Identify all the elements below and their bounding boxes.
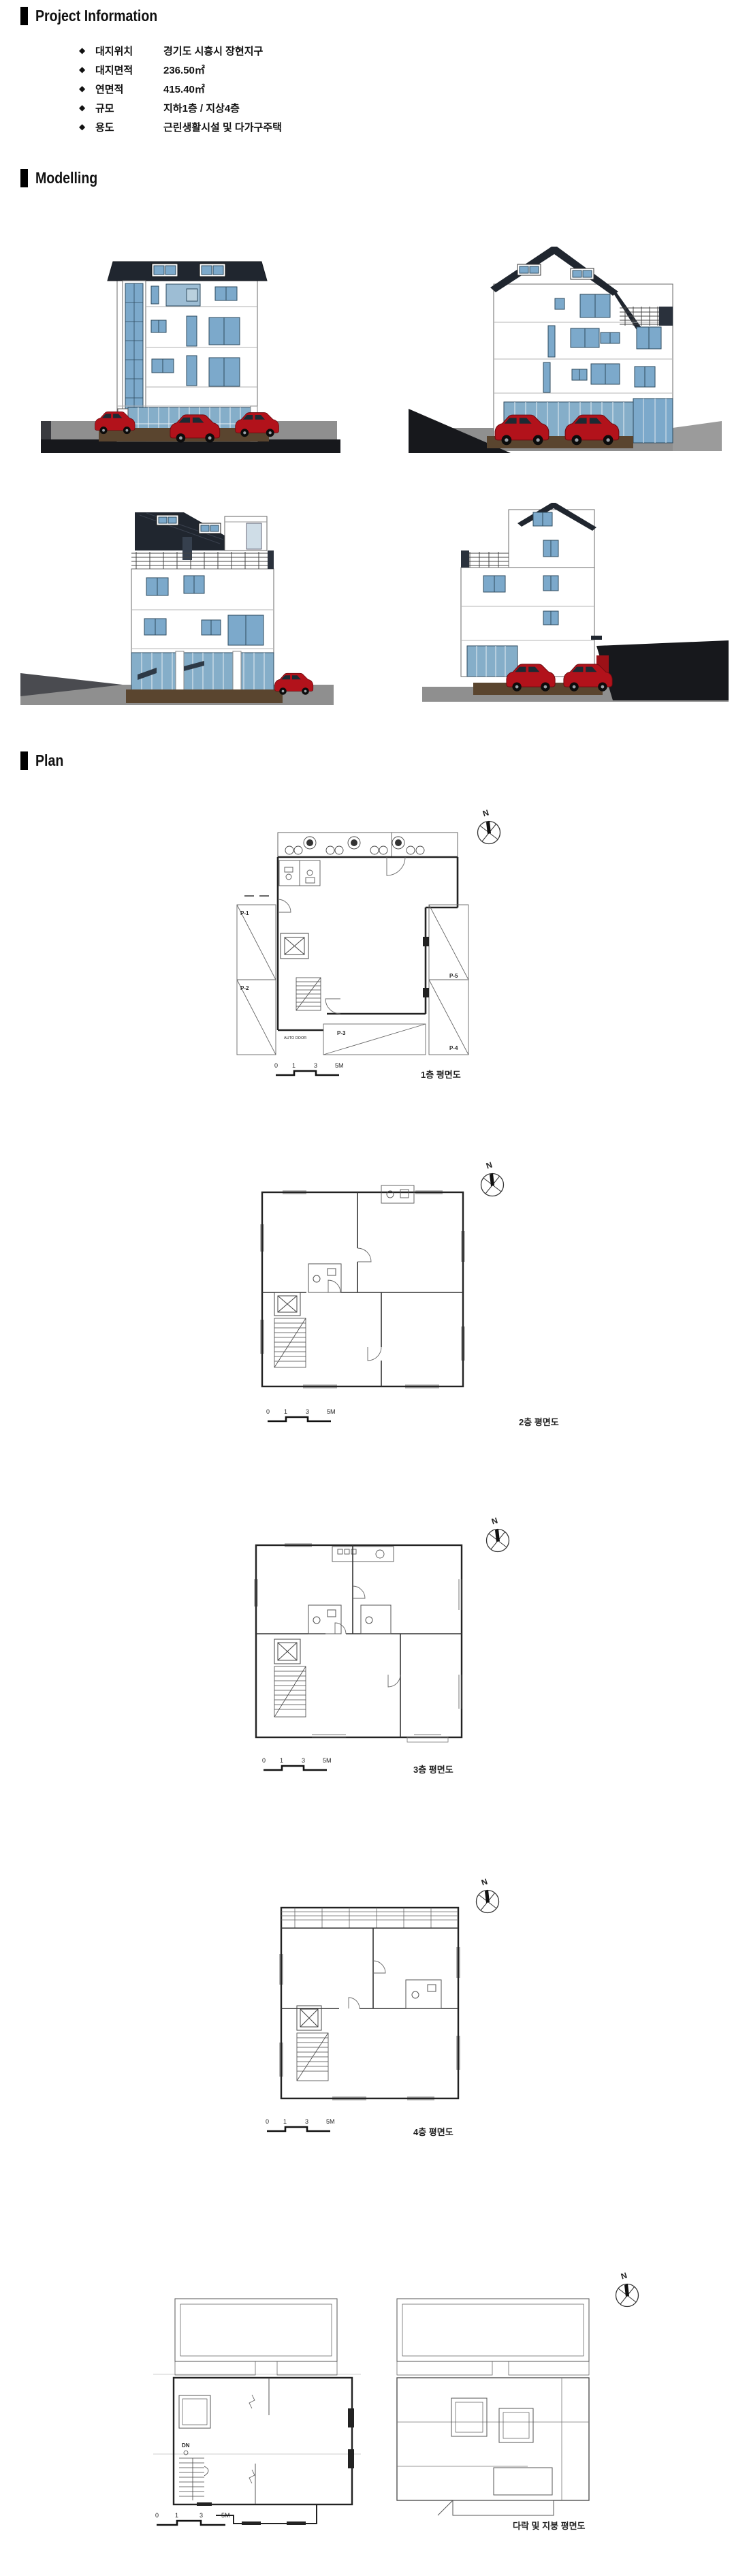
section-title-plan: Plan xyxy=(20,751,69,770)
stairs xyxy=(274,1318,306,1367)
scale-tick: 0 xyxy=(155,2512,159,2519)
info-row-site-location: ◆ 대지위치 경기도 시흥시 장현지구 xyxy=(79,41,282,60)
floor-plan-1f: N xyxy=(225,801,511,1097)
info-value: 근린생활시설 및 다가구주택 xyxy=(163,120,282,134)
floor-plan-2f: N xyxy=(225,1155,572,1455)
plan-drawing-4f xyxy=(271,1899,468,2104)
parking-bottom xyxy=(323,1024,426,1055)
interior-walls xyxy=(256,1545,462,1737)
scale-tick: 5M xyxy=(335,1062,344,1069)
info-value: 236.50㎡ xyxy=(163,63,205,77)
window-ticks xyxy=(261,1191,464,1388)
down-label: DN xyxy=(182,2442,190,2449)
info-row-site-area: ◆ 대지면적 236.50㎡ xyxy=(79,60,282,79)
storefront xyxy=(131,651,274,695)
penthouse xyxy=(225,516,267,550)
north-compass-icon: N xyxy=(473,806,505,848)
project-info-title: Project Information xyxy=(35,7,157,25)
door-arcs xyxy=(349,1961,385,2008)
scale-tick: 0 xyxy=(266,2118,269,2125)
info-row-use: ◆ 용도 근린생활시설 및 다가구주택 xyxy=(79,117,282,136)
interior-walls xyxy=(281,1928,458,2008)
north-compass-icon: N xyxy=(482,1514,513,1556)
kitchen-counter xyxy=(332,1547,394,1562)
scale-tick: 0 xyxy=(262,1757,266,1764)
diamond-bullet-icon: ◆ xyxy=(79,103,95,112)
scale-tick: 5M xyxy=(323,1757,332,1764)
info-label: 규모 xyxy=(95,101,155,115)
door-arcs xyxy=(328,1248,381,1361)
north-label: N xyxy=(480,1877,489,1888)
render-right-side-elevation xyxy=(409,211,722,453)
plan-drawing-1f: P-1 P-2 P-3 P-4 P-5 AUTO DOOR xyxy=(235,828,470,1059)
floor-plan-3f: N xyxy=(225,1509,511,1802)
roof-body xyxy=(397,2378,589,2500)
scale-tick: 0 xyxy=(274,1062,278,1069)
elevator xyxy=(274,1639,300,1664)
scale-bar: 0 1 3 5M xyxy=(264,1407,346,1426)
scale-tick: 0 xyxy=(266,1408,270,1415)
building xyxy=(461,503,602,677)
scale-bar: 0 1 3 5M xyxy=(272,1061,354,1080)
parking-label: P-5 xyxy=(449,973,458,979)
scale-tick: 3 xyxy=(314,1062,317,1069)
parking-label: P-3 xyxy=(337,1030,346,1036)
scale-tick: 1 xyxy=(280,1757,283,1764)
landscape-strip xyxy=(278,833,458,857)
attic-body xyxy=(174,2378,352,2504)
floor-plan-label: 4층 평면도 xyxy=(413,2125,453,2138)
title-bar-icon xyxy=(20,169,28,187)
walls xyxy=(278,857,458,1030)
info-value: 경기도 시흥시 장현지구 xyxy=(163,44,263,58)
title-bar-icon xyxy=(20,751,28,770)
bathroom xyxy=(308,1264,341,1292)
scale-tick: 1 xyxy=(284,1408,287,1415)
section-title-project-info: Project Information xyxy=(20,7,179,25)
floor-plan-label: 1층 평면도 xyxy=(421,1068,461,1081)
north-label: N xyxy=(485,1160,494,1171)
scale-tick: 5M xyxy=(327,1408,336,1415)
render-left-side-elevation xyxy=(422,470,729,702)
bathroom xyxy=(406,1980,441,2008)
window-ticks xyxy=(280,1947,460,2100)
stairs xyxy=(297,2033,328,2081)
elevator xyxy=(281,933,308,959)
info-value: 415.40㎡ xyxy=(163,82,205,96)
floor-plan-label: 3층 평면도 xyxy=(413,1763,453,1775)
north-label: N xyxy=(490,1516,499,1527)
elevator-overrun xyxy=(451,2398,487,2436)
scale-tick: 5M xyxy=(326,2118,335,2125)
scale-tick: 1 xyxy=(175,2512,178,2519)
info-label: 연면적 xyxy=(95,82,155,96)
info-row-scale: ◆ 규모 지하1층 / 지상4층 xyxy=(79,98,282,117)
scale-tick: 1 xyxy=(283,2118,287,2125)
lower-roof xyxy=(438,2500,554,2515)
scale-tick: 5M xyxy=(221,2512,230,2519)
scale-tick: 3 xyxy=(305,2118,308,2125)
scale-bar: 0 1 3 5M xyxy=(264,2117,345,2136)
parking-label: P-2 xyxy=(240,985,249,991)
terrace-railing xyxy=(281,1908,458,1928)
plan-title: Plan xyxy=(35,751,63,770)
stairs xyxy=(296,978,321,1010)
parking-left xyxy=(237,896,276,1055)
scale-bar: 0 1 3 5M xyxy=(153,2511,242,2530)
plan-drawing-roof xyxy=(392,2296,599,2517)
scale-tick: 3 xyxy=(302,1757,305,1764)
building-roof xyxy=(108,262,267,281)
diamond-bullet-icon: ◆ xyxy=(79,84,95,93)
floor-plan-4f: N xyxy=(225,1870,511,2163)
stairs xyxy=(179,2451,208,2500)
plan-drawing-2f xyxy=(242,1183,466,1395)
elevator xyxy=(297,2006,321,2030)
building xyxy=(131,512,274,695)
modelling-title: Modelling xyxy=(35,169,97,187)
door-arcs xyxy=(278,857,405,1014)
scale-tick: 1 xyxy=(292,1062,296,1069)
render-rear-elevation xyxy=(20,470,334,705)
window-ticks xyxy=(255,1544,462,1737)
scale-bar: 0 1 3 5M xyxy=(260,1756,342,1775)
diamond-bullet-icon: ◆ xyxy=(79,46,95,55)
auto-door-label: AUTO DOOR xyxy=(284,1036,306,1040)
toilet-room xyxy=(279,860,320,886)
stairs xyxy=(274,1666,306,1717)
north-label: N xyxy=(481,808,490,819)
trees xyxy=(285,837,424,854)
floor-plan-label: 2층 평면도 xyxy=(519,1415,559,1428)
scale-tick: 3 xyxy=(306,1408,309,1415)
diamond-bullet-icon: ◆ xyxy=(79,65,95,74)
plan-drawing-attic: DN xyxy=(153,2296,361,2528)
diamond-bullet-icon: ◆ xyxy=(79,122,95,131)
wall-stub xyxy=(423,988,429,997)
plan-drawing-3f xyxy=(244,1538,472,1743)
info-label: 용도 xyxy=(95,120,155,134)
entrance-glazing xyxy=(467,646,517,677)
bathrooms xyxy=(308,1605,391,1634)
info-row-floor-area: ◆ 연면적 415.40㎡ xyxy=(79,79,282,98)
scale-tick: 3 xyxy=(200,2512,203,2519)
terrace-railing xyxy=(131,550,274,569)
building xyxy=(490,247,673,443)
parking-label: P-4 xyxy=(449,1045,458,1051)
project-info-list: ◆ 대지위치 경기도 시흥시 장현지구 ◆ 대지면적 236.50㎡ ◆ 연면적… xyxy=(79,41,282,136)
elevator xyxy=(274,1292,300,1316)
render-front-elevation xyxy=(41,204,340,453)
wall-stub xyxy=(423,937,429,946)
floor-plan-label: 다락 및 지붕 평면도 xyxy=(513,2519,586,2532)
terrace-railing xyxy=(461,550,509,568)
bath-annex xyxy=(381,1185,414,1203)
wall-stub xyxy=(348,2449,354,2468)
wall-stub xyxy=(348,2408,354,2427)
info-value: 지하1층 / 지상4층 xyxy=(163,101,240,115)
interior-walls xyxy=(262,1192,463,1386)
skylight xyxy=(179,2395,210,2428)
dirt-strip xyxy=(126,689,283,703)
north-compass-icon: N xyxy=(477,1158,508,1200)
north-label: N xyxy=(620,2271,628,2282)
section-title-modelling: Modelling xyxy=(20,169,108,187)
north-compass-icon: N xyxy=(472,1875,503,1917)
info-label: 대지위치 xyxy=(95,44,155,58)
building xyxy=(108,262,267,441)
info-label: 대지면적 xyxy=(95,63,155,77)
floor-plan-attic-roof: N xyxy=(41,2269,708,2569)
door-arcs xyxy=(335,1586,400,1687)
skylights xyxy=(494,2408,552,2495)
north-compass-icon: N xyxy=(611,2269,643,2311)
portfolio-page: Project Information ◆ 대지위치 경기도 시흥시 장현지구 … xyxy=(0,0,749,2576)
parking-right xyxy=(429,905,468,1055)
title-bar-icon xyxy=(20,7,28,25)
parking-label: P-1 xyxy=(240,910,249,916)
